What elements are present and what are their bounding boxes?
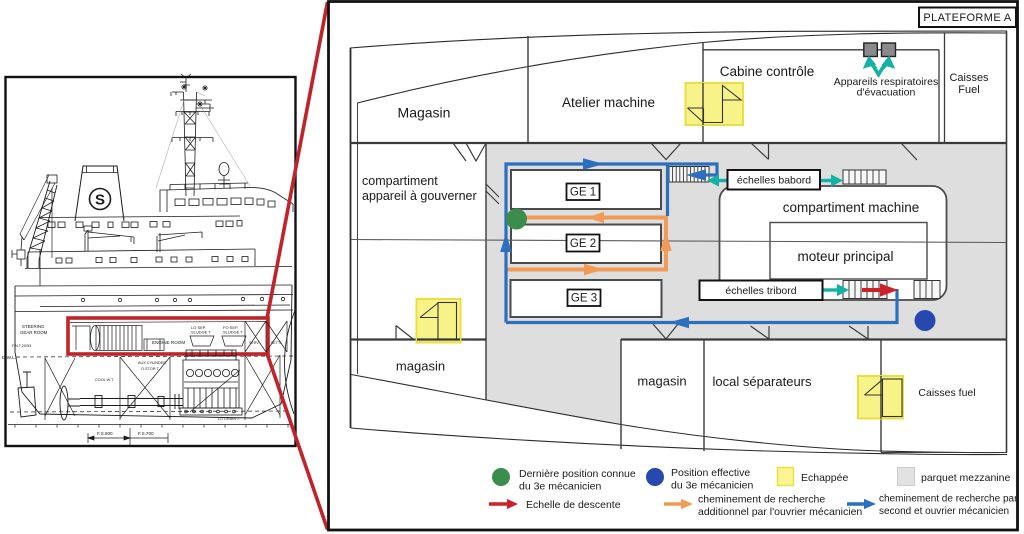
svg-text:GE 2: GE 2 xyxy=(570,238,596,250)
svg-text:cheminement de recherche par: cheminement de recherche par xyxy=(879,494,1018,505)
svg-text:magasin: magasin xyxy=(637,374,686,389)
svg-text:appareil à gouverner: appareil à gouverner xyxy=(362,189,477,203)
svg-text:moteur principal: moteur principal xyxy=(797,249,893,264)
svg-text:Fuel: Fuel xyxy=(958,84,979,96)
svg-text:COOL W.T.: COOL W.T. xyxy=(95,378,114,382)
svg-text:compartiment machine: compartiment machine xyxy=(783,200,920,215)
svg-text:magasin: magasin xyxy=(396,359,445,374)
svg-text:du 3e mécanicien: du 3e mécanicien xyxy=(519,481,601,493)
svg-text:échelles babord: échelles babord xyxy=(737,175,811,187)
svg-text:Dernière position connue: Dernière position connue xyxy=(519,468,636,480)
svg-text:second et ouvrier mécanicien: second et ouvrier mécanicien xyxy=(879,506,1009,517)
svg-text:PLATEFORME A: PLATEFORME A xyxy=(923,12,1012,24)
svg-text:parquet mezzanine: parquet mezzanine xyxy=(921,472,1010,484)
svg-text:GEAR ROOM: GEAR ROOM xyxy=(20,330,48,335)
svg-text:STEERING: STEERING xyxy=(22,324,45,329)
svg-text:Echelle de descente: Echelle de descente xyxy=(526,499,621,511)
svg-text:additionnel par l'ouvrier méca: additionnel par l'ouvrier mécanicien xyxy=(698,506,862,518)
svg-text:D.W.L.: D.W.L. xyxy=(2,355,16,360)
svg-text:du 3e mécanicien: du 3e mécanicien xyxy=(671,480,753,492)
svg-text:Atelier machine: Atelier machine xyxy=(562,95,655,110)
svg-text:d'évacuation: d'évacuation xyxy=(857,87,916,99)
svg-text:Position effective: Position effective xyxy=(671,467,750,479)
svg-text:SETTL: SETTL xyxy=(271,341,282,345)
svg-text:GE 1: GE 1 xyxy=(570,187,596,199)
svg-text:Magasin: Magasin xyxy=(398,105,451,121)
svg-text:GE 3: GE 3 xyxy=(571,293,597,305)
svg-text:S: S xyxy=(95,192,105,209)
svg-text:compartiment: compartiment xyxy=(362,174,438,188)
svg-text:Caisses fuel: Caisses fuel xyxy=(918,387,975,399)
svg-text:F.S.700: F.S.700 xyxy=(138,431,154,436)
svg-text:ENGINE ROOM: ENGINE ROOM xyxy=(152,340,185,345)
svg-text:SERV.: SERV. xyxy=(249,341,259,345)
svg-text:échelles tribord: échelles tribord xyxy=(725,285,796,297)
svg-text:SLUDGE T: SLUDGE T xyxy=(191,330,211,335)
svg-text:Echappée: Echappée xyxy=(801,472,848,484)
svg-text:F.N.T.20/53: F.N.T.20/53 xyxy=(12,344,31,348)
svg-text:cheminement de recherche: cheminement de recherche xyxy=(698,494,825,506)
svg-text:local séparateurs: local séparateurs xyxy=(713,374,812,389)
svg-text:LO DRAIN T.: LO DRAIN T. xyxy=(218,417,240,421)
svg-text:Caisses: Caisses xyxy=(949,72,989,84)
svg-text:F.S.800: F.S.800 xyxy=(97,431,113,436)
svg-text:SLUDGE T: SLUDGE T xyxy=(223,330,243,335)
svg-text:AUX.CYLINDER: AUX.CYLINDER xyxy=(138,361,166,365)
svg-text:O.STOR.T.: O.STOR.T. xyxy=(141,367,160,371)
svg-text:Cabine contrôle: Cabine contrôle xyxy=(720,64,815,79)
